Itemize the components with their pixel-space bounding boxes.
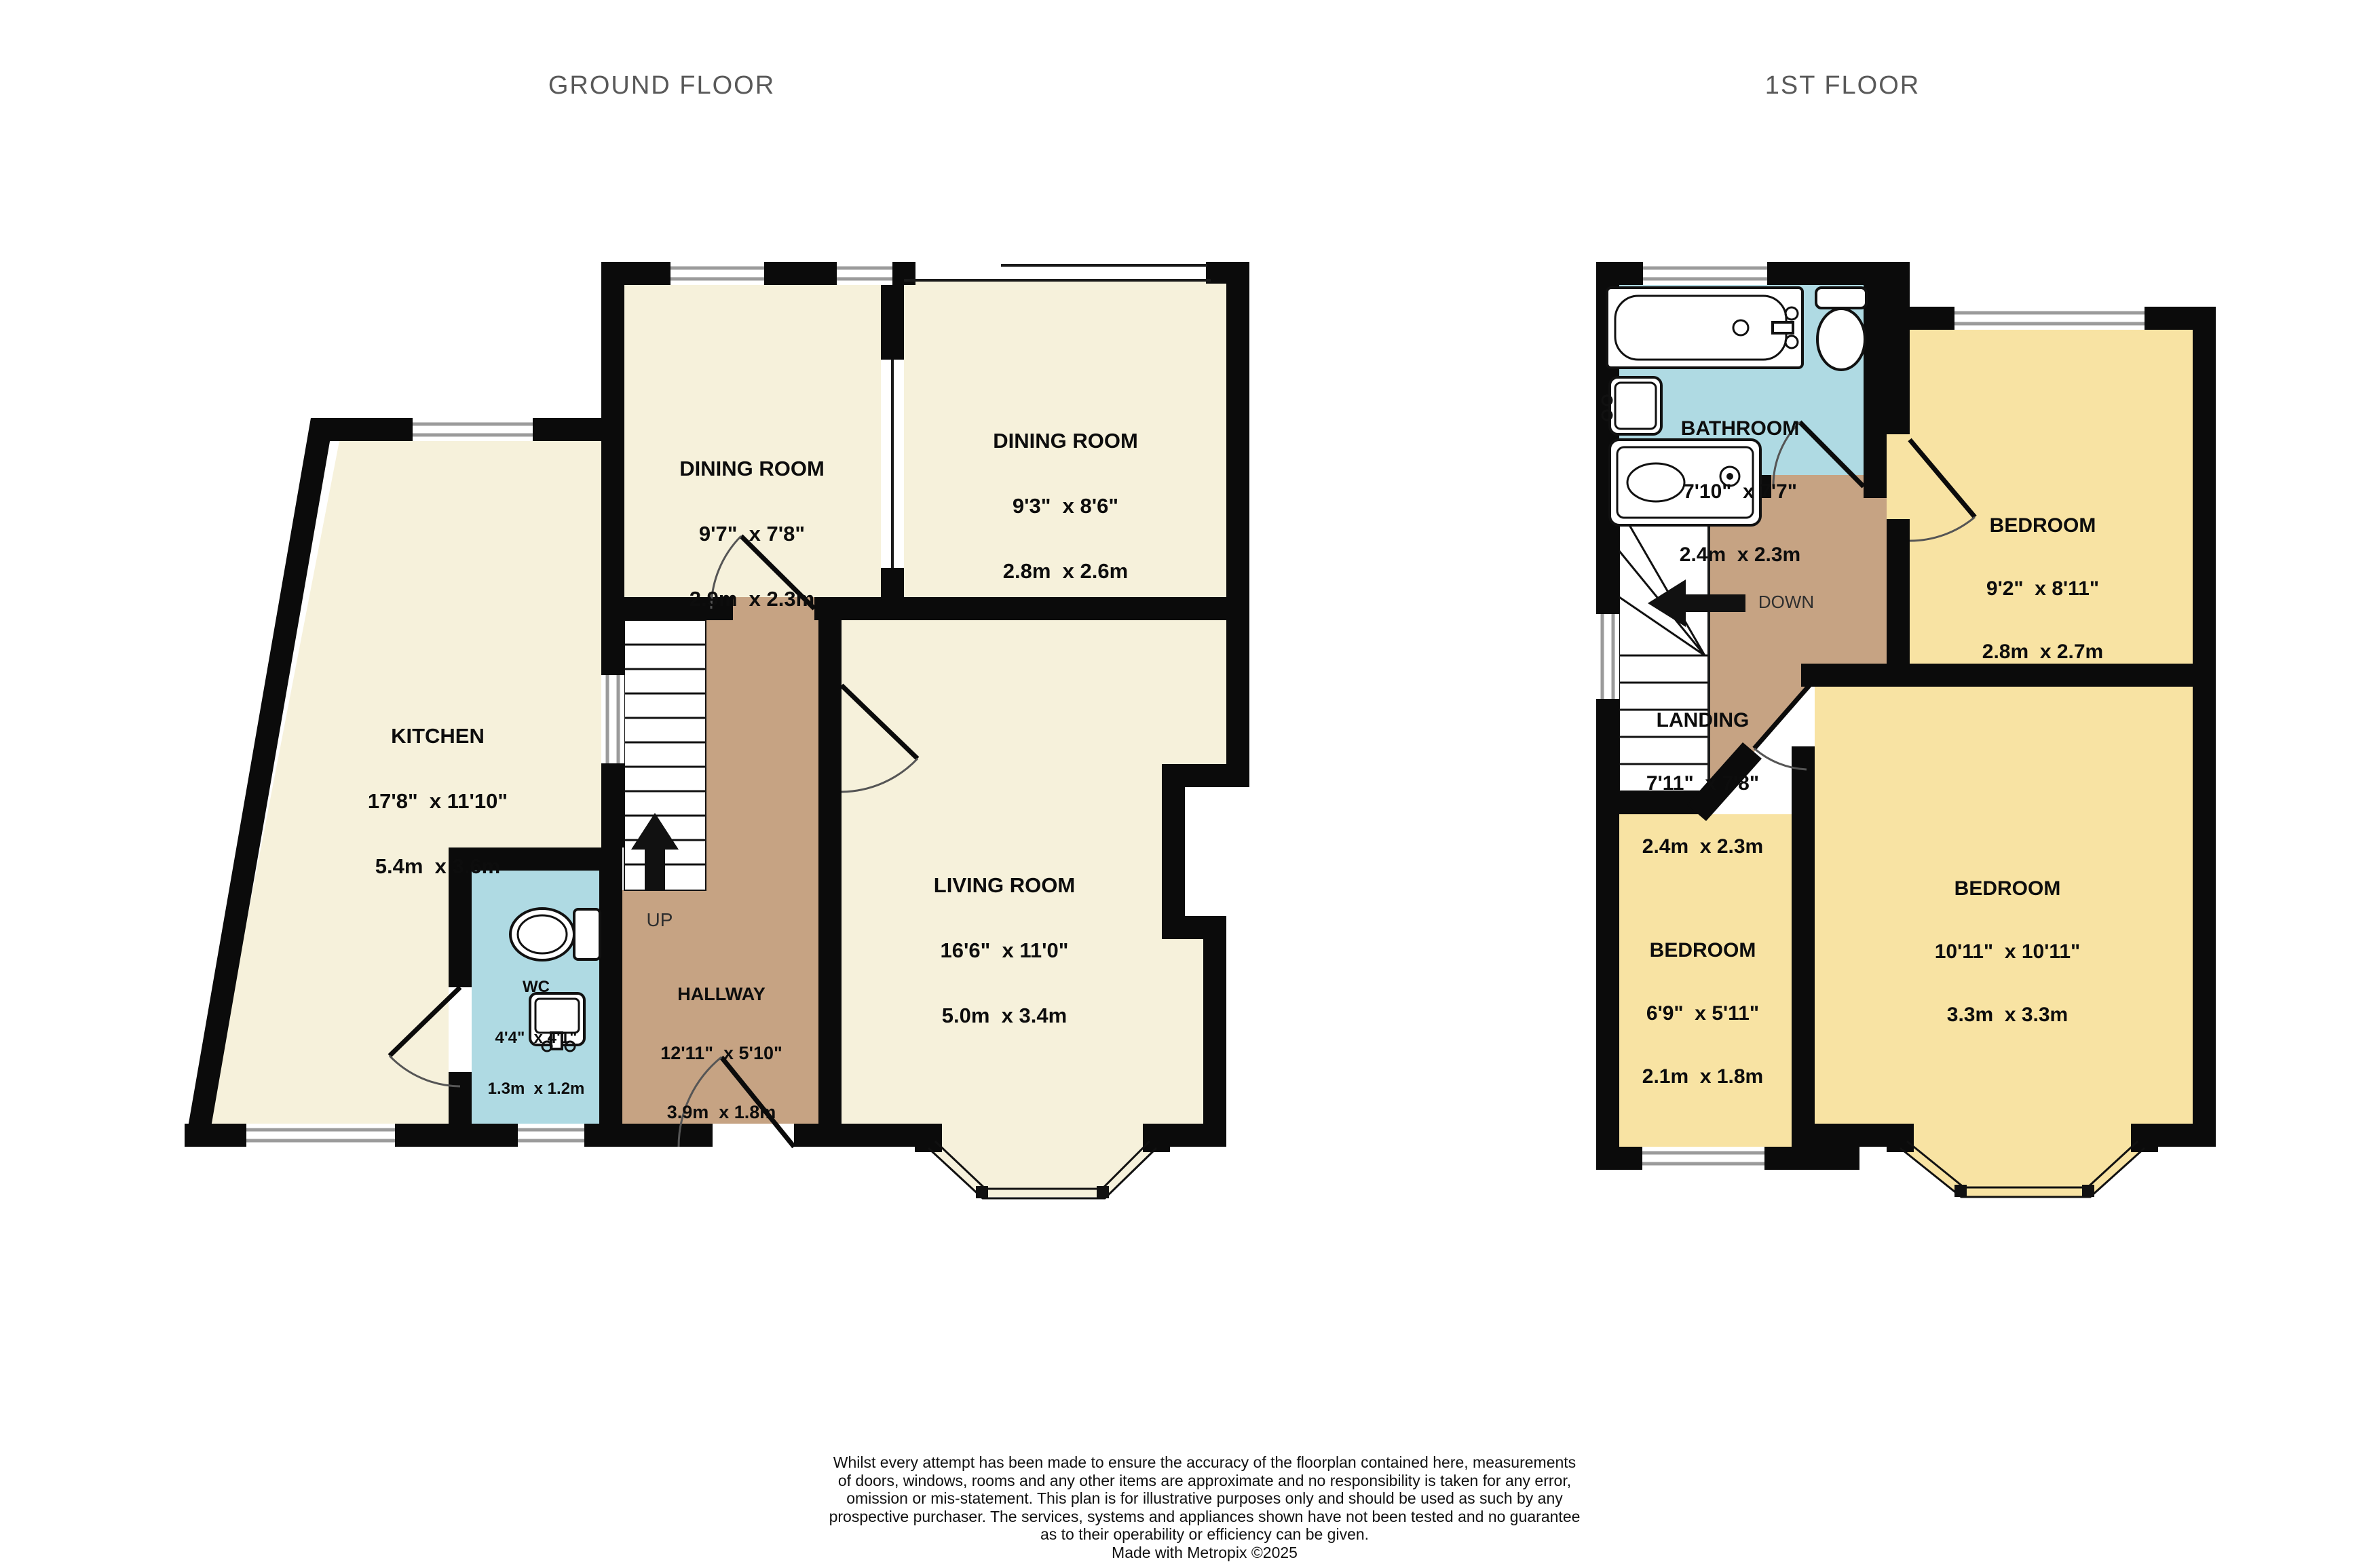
window-stairs-left	[1596, 614, 1619, 699]
landing-label: LANDING 7'11" x 7'8" 2.4m x 2.3m	[1642, 668, 1763, 878]
room-name: DINING ROOM	[993, 430, 1138, 452]
room-name: LANDING	[1642, 710, 1763, 731]
kitchen-label: KITCHEN 17'8" x 11'10" 5.4m x 3.6m	[368, 682, 508, 899]
room-dims-metric: 2.4m x 2.3m	[1642, 836, 1763, 857]
window-bathroom-top	[1643, 262, 1767, 285]
metropix-credit: Made with Metropix ©2025	[763, 1544, 1646, 1562]
room-name: LIVING ROOM	[934, 875, 1075, 896]
dining-room-2-label: DINING ROOM 9'3" x 8'6" 2.8m x 2.6m	[993, 387, 1138, 604]
first-floor-title: 1ST FLOOR	[1765, 71, 1920, 100]
window-kitchen-stairs	[601, 675, 624, 763]
bathtub-icon	[1607, 288, 1802, 368]
room-name: BATHROOM	[1680, 418, 1800, 439]
window-kitchen-bottom	[246, 1124, 395, 1147]
room-name: BEDROOM	[1982, 515, 2103, 536]
room-name: BEDROOM	[1642, 940, 1763, 961]
ground-floor-title: GROUND FLOOR	[548, 71, 775, 100]
stairs-ground	[624, 620, 706, 890]
room-dims-metric: 2.4m x 2.3m	[1680, 544, 1800, 565]
living-room-bay-area	[928, 1124, 1156, 1197]
room-dims-metric: 3.9m x 1.8m	[660, 1103, 782, 1122]
toilet-icon	[1816, 288, 1866, 370]
room-name: WC	[488, 978, 585, 995]
bedroom-big-bay-area	[1900, 1124, 2145, 1197]
room-dims-imperial: 10'11" x 10'11"	[1935, 941, 2081, 962]
disclaimer-line: prospective purchaser. The services, sys…	[763, 1508, 1646, 1526]
window-bedroom-small-bottom	[1642, 1147, 1764, 1170]
room-dims-metric: 2.1m x 1.8m	[1642, 1066, 1763, 1087]
dining-room-1-label: DINING ROOM 9'7" x 7'8" 2.9m x 2.3m	[679, 415, 825, 632]
window-kitchen-top	[413, 418, 533, 441]
bedroom1-label: BEDROOM 9'2" x 8'11" 2.8m x 2.7m	[1982, 473, 2103, 683]
window-bedroom1-top	[1954, 307, 2145, 330]
disclaimer-line: of doors, windows, rooms and any other i…	[763, 1472, 1646, 1490]
window-dining1-a	[670, 262, 764, 285]
room-dims-metric: 2.8m x 2.6m	[993, 560, 1138, 582]
bedroom-small-label: BEDROOM 6'9" x 5'11" 2.1m x 1.8m	[1642, 898, 1763, 1108]
room-dims-imperial: 7'11" x 7'8"	[1642, 773, 1763, 794]
room-dims-metric: 1.3m x 1.2m	[488, 1080, 585, 1097]
room-dims-imperial: 6'9" x 5'11"	[1642, 1003, 1763, 1024]
bathroom-label: BATHROOM 7'10" x 7'7" 2.4m x 2.3m	[1680, 376, 1800, 586]
room-dims-metric: 2.9m x 2.3m	[679, 588, 825, 610]
up-label: UP	[647, 909, 673, 931]
hallway-label: HALLWAY 12'11" x 5'10" 3.9m x 1.8m	[660, 945, 782, 1142]
room-name: BEDROOM	[1935, 878, 2081, 899]
room-dims-metric: 3.3m x 3.3m	[1935, 1004, 2081, 1025]
window-dining1-b	[837, 262, 892, 285]
room-dims-metric: 5.4m x 3.6m	[368, 856, 508, 877]
bedroom-big-label: BEDROOM 10'11" x 10'11" 3.3m x 3.3m	[1935, 836, 2081, 1046]
window-wc-bottom	[518, 1124, 584, 1147]
room-dims-imperial: 7'10" x 7'7"	[1680, 481, 1800, 502]
room-name: HALLWAY	[660, 985, 782, 1004]
room-name: KITCHEN	[368, 725, 508, 747]
disclaimer-text: Whilst every attempt has been made to en…	[763, 1453, 1646, 1562]
living-room-label: LIVING ROOM 16'6" x 11'0" 5.0m x 3.4m	[934, 831, 1075, 1048]
disclaimer-line: as to their operability or efficiency ca…	[763, 1525, 1646, 1544]
room-dims-imperial: 4'4" x 4'1"	[488, 1029, 585, 1046]
room-dims-imperial: 9'7" x 7'8"	[679, 523, 825, 545]
room-dims-metric: 2.8m x 2.7m	[1982, 641, 2103, 662]
room-dims-imperial: 16'6" x 11'0"	[934, 940, 1075, 961]
room-dims-imperial: 9'3" x 8'6"	[993, 495, 1138, 517]
room-dims-imperial: 17'8" x 11'10"	[368, 790, 508, 812]
room-dims-imperial: 12'11" x 5'10"	[660, 1044, 782, 1063]
room-name: DINING ROOM	[679, 458, 825, 480]
bathroom-sink-icon	[1602, 377, 1661, 434]
wc-label: WC 4'4" x 4'1" 1.3m x 1.2m	[488, 945, 585, 1114]
disclaimer-line: Whilst every attempt has been made to en…	[763, 1453, 1646, 1472]
disclaimer-line: omission or mis-statement. This plan is …	[763, 1489, 1646, 1508]
down-label: DOWN	[1758, 592, 1814, 613]
floorplan-canvas	[0, 0, 2380, 1561]
room-dims-imperial: 9'2" x 8'11"	[1982, 578, 2103, 599]
room-dims-metric: 5.0m x 3.4m	[934, 1005, 1075, 1027]
